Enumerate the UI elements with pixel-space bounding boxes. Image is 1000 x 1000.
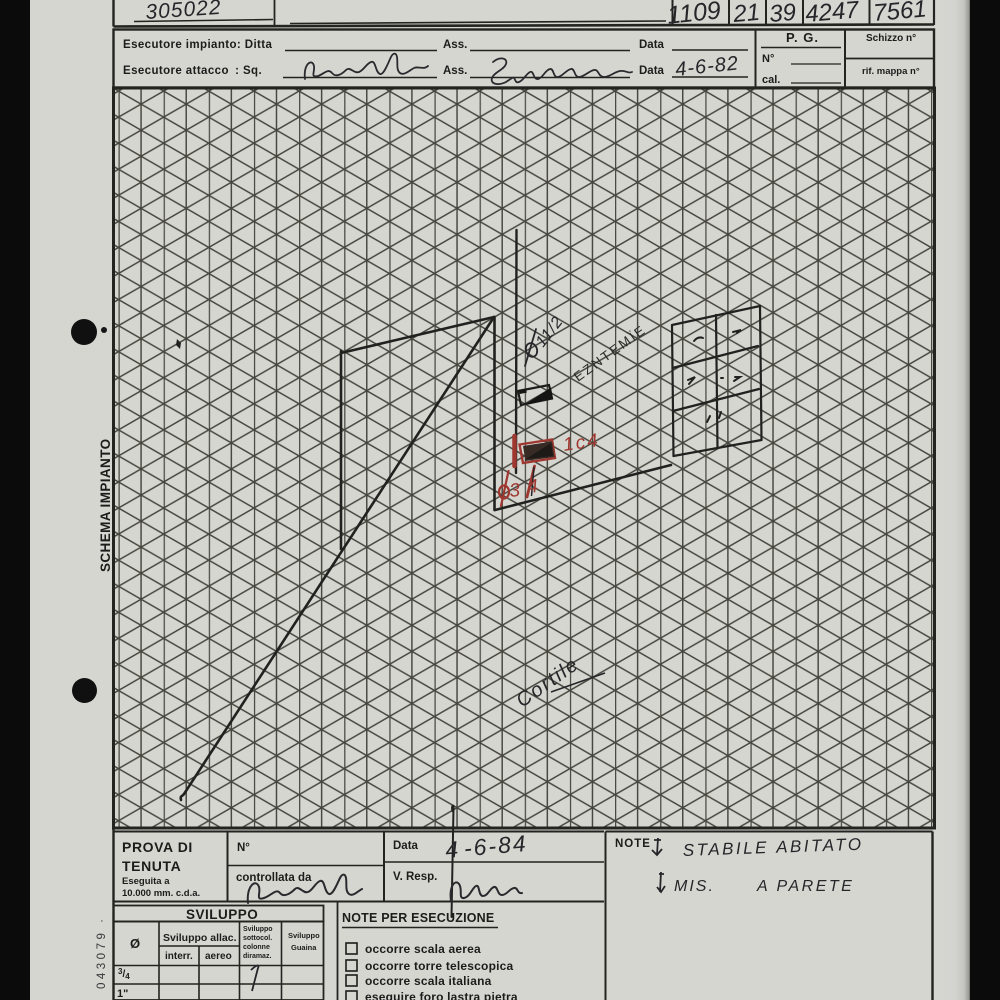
svg-text:N°: N°: [237, 842, 250, 854]
svg-text:21: 21: [731, 0, 761, 28]
svg-text:Ass.: Ass.: [443, 65, 467, 77]
svg-text:043079 ·: 043079 ·: [96, 916, 108, 989]
svg-text:Data: Data: [639, 65, 665, 77]
svg-text:V. Resp.: V. Resp.: [393, 871, 437, 883]
svg-text:colonne: colonne: [243, 944, 270, 951]
svg-text:SCHEMA IMPIANTO: SCHEMA IMPIANTO: [98, 438, 113, 572]
svg-text:sottocol.: sottocol.: [243, 935, 272, 942]
svg-text:occorre torre telescopica: occorre torre telescopica: [365, 959, 514, 973]
svg-text:PROVA DI: PROVA DI: [122, 839, 193, 855]
svg-text:P. G.: P. G.: [786, 30, 819, 45]
svg-text:7561: 7561: [872, 0, 928, 27]
svg-text:NOTE: NOTE: [615, 838, 651, 850]
svg-text:Schizzo n°: Schizzo n°: [866, 33, 916, 44]
svg-text:3/4: 3/4: [118, 967, 130, 981]
svg-text:occorre scala aerea: occorre scala aerea: [365, 942, 481, 956]
svg-text:4 -6-84: 4 -6-84: [444, 830, 528, 863]
svg-text:Ass.: Ass.: [443, 39, 467, 51]
svg-text:SVILUPPO: SVILUPPO: [186, 907, 258, 922]
svg-text:Sviluppo: Sviluppo: [288, 931, 320, 940]
svg-text:Eseguita a: Eseguita a: [122, 876, 170, 887]
svg-text:eseguire foro lastra pietra: eseguire foro lastra pietra: [365, 990, 518, 1000]
svg-text:NOTE PER ESECUZIONE: NOTE PER ESECUZIONE: [342, 911, 494, 925]
svg-text:Sviluppo allac.: Sviluppo allac.: [163, 932, 237, 944]
svg-text:TENUTA: TENUTA: [122, 858, 181, 874]
svg-text:N°: N°: [762, 53, 774, 65]
svg-text:Ø: Ø: [130, 936, 140, 951]
svg-text:aereo: aereo: [205, 951, 232, 962]
svg-text:4247: 4247: [804, 0, 861, 28]
svg-text:A PARETE: A PARETE: [756, 878, 854, 895]
svg-text:controllata da: controllata da: [236, 872, 312, 884]
svg-text:cal.: cal.: [762, 74, 780, 86]
svg-text:Esecutore attacco : Sq.: Esecutore attacco : Sq.: [123, 65, 262, 77]
svg-text:Sviluppo: Sviluppo: [243, 926, 273, 933]
svg-text:STABILE АBITATO: STABILE АBITATO: [682, 835, 863, 860]
svg-text:39: 39: [768, 0, 797, 28]
svg-text:Esecutore impianto: Ditta: Esecutore impianto: Ditta: [123, 39, 273, 51]
svg-text:10.000 mm. c.d.a.: 10.000 mm. c.d.a.: [122, 888, 200, 899]
svg-text:1": 1": [117, 988, 128, 1000]
svg-text:occorre scala italiana: occorre scala italiana: [365, 974, 492, 988]
svg-text:4: 4: [526, 476, 539, 498]
svg-text:МIS.: МIS.: [674, 878, 715, 895]
svg-text:diramaz.: diramaz.: [243, 953, 271, 960]
svg-text:Data: Data: [639, 39, 665, 51]
svg-text:rif. mappa n°: rif. mappa n°: [862, 66, 920, 77]
svg-text:Guaina: Guaina: [291, 943, 317, 952]
svg-text:interr.: interr.: [165, 951, 193, 962]
svg-text:Data: Data: [393, 840, 419, 852]
